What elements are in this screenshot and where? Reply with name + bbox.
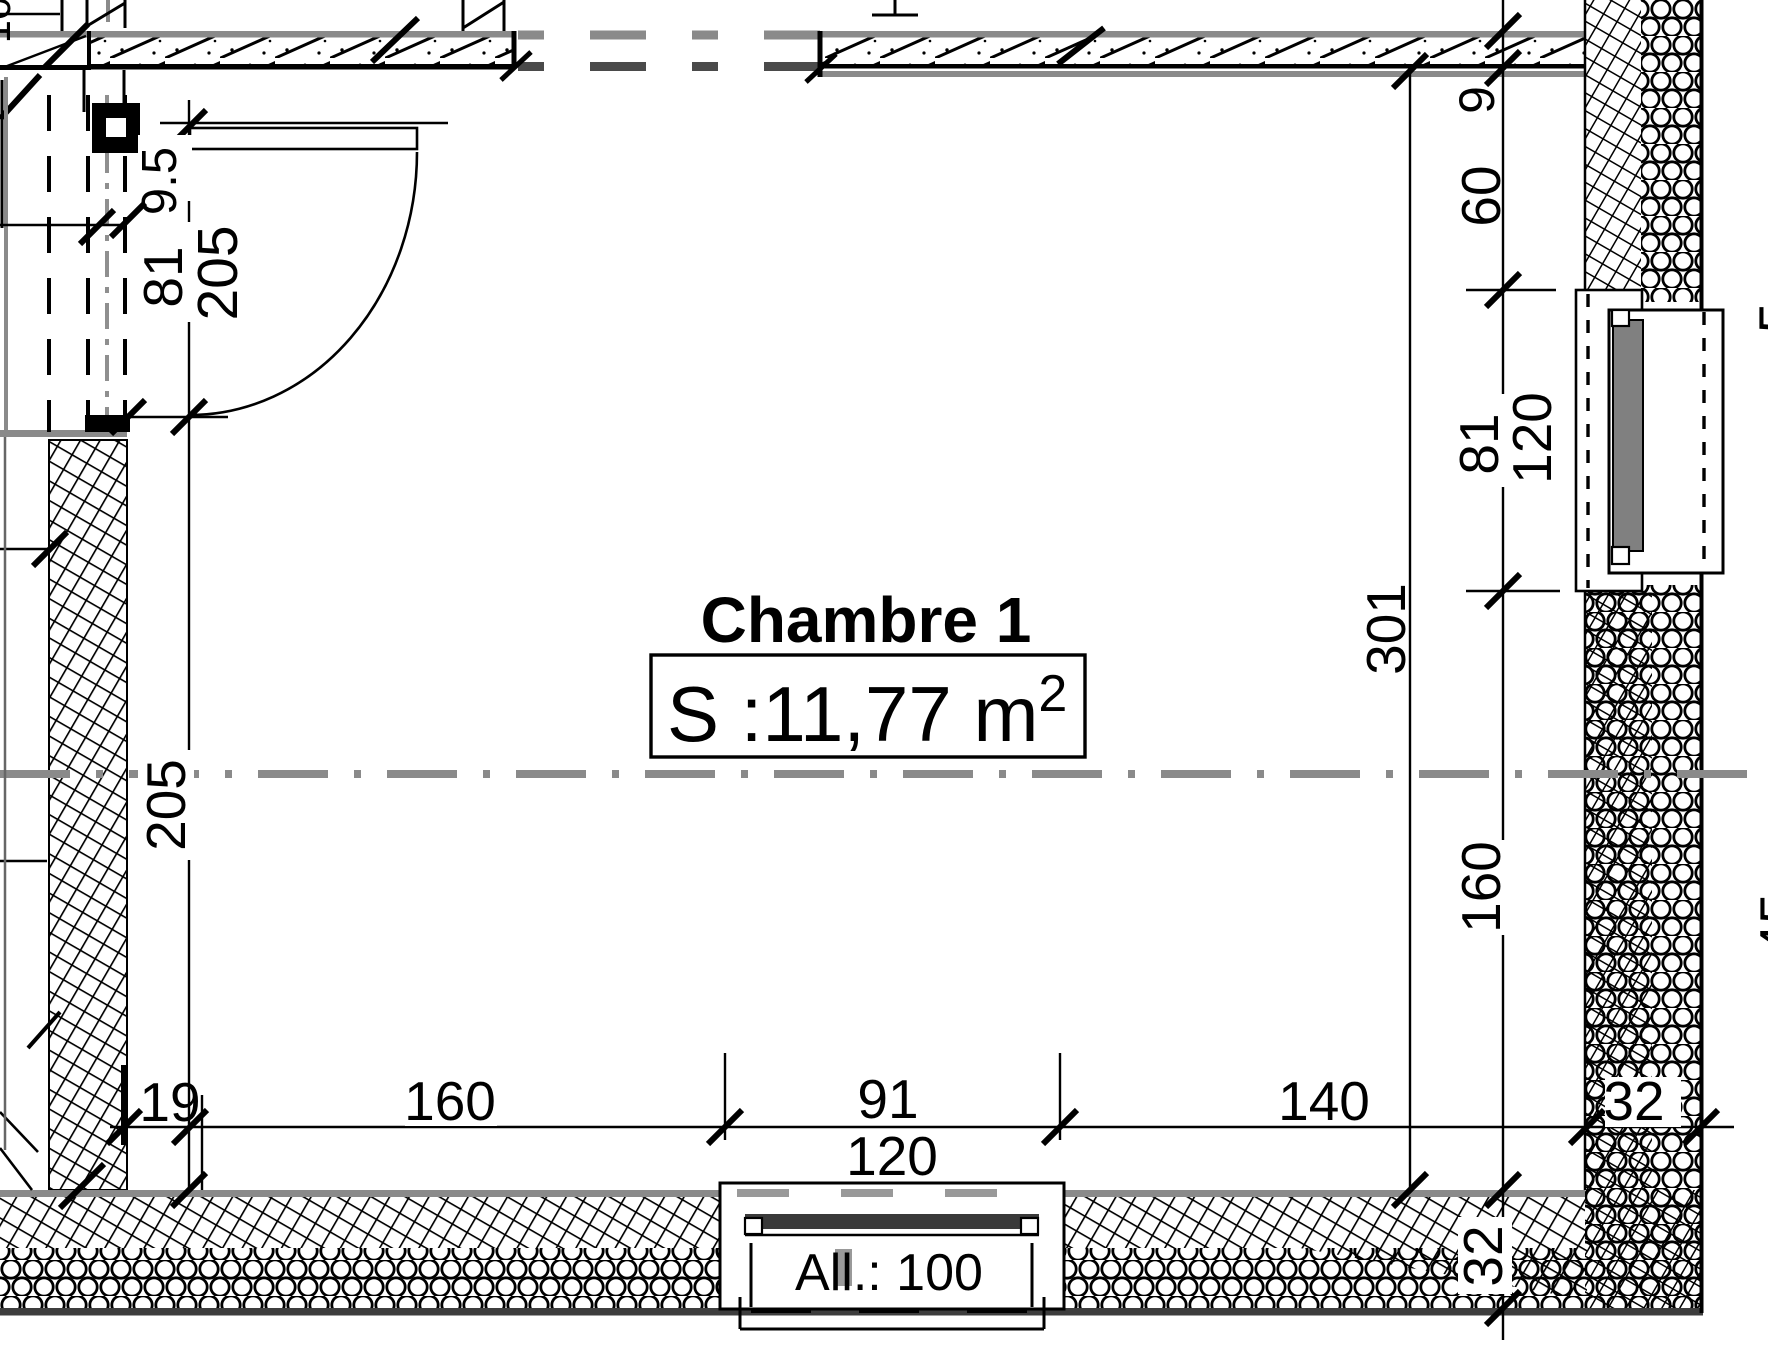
svg-text:9.5: 9.5 — [133, 147, 187, 215]
svg-text:32: 32 — [1603, 1070, 1664, 1132]
svg-text:32: 32 — [1452, 1225, 1514, 1286]
svg-text:S :11,77 m2: S :11,77 m2 — [667, 665, 1067, 758]
svg-text:120: 120 — [1501, 392, 1563, 484]
svg-text:205: 205 — [186, 225, 250, 320]
svg-text:10: 10 — [0, 0, 19, 43]
svg-text:60: 60 — [1450, 165, 1512, 226]
svg-text:160: 160 — [404, 1070, 496, 1132]
svg-text:140: 140 — [1278, 1070, 1370, 1132]
svg-text:5: 5 — [1747, 303, 1768, 334]
svg-text:45: 45 — [1748, 893, 1768, 954]
svg-text:160: 160 — [1450, 841, 1512, 933]
svg-text:All.: 100: All.: 100 — [795, 1244, 983, 1302]
svg-text:Chambre 1: Chambre 1 — [701, 584, 1032, 656]
svg-text:19: 19 — [139, 1071, 200, 1133]
svg-text:9: 9 — [1449, 86, 1505, 114]
svg-text:301: 301 — [1355, 583, 1417, 675]
svg-text:120: 120 — [846, 1125, 938, 1187]
svg-text:81: 81 — [132, 246, 194, 307]
svg-text:205: 205 — [135, 759, 197, 851]
svg-text:91: 91 — [857, 1068, 918, 1130]
